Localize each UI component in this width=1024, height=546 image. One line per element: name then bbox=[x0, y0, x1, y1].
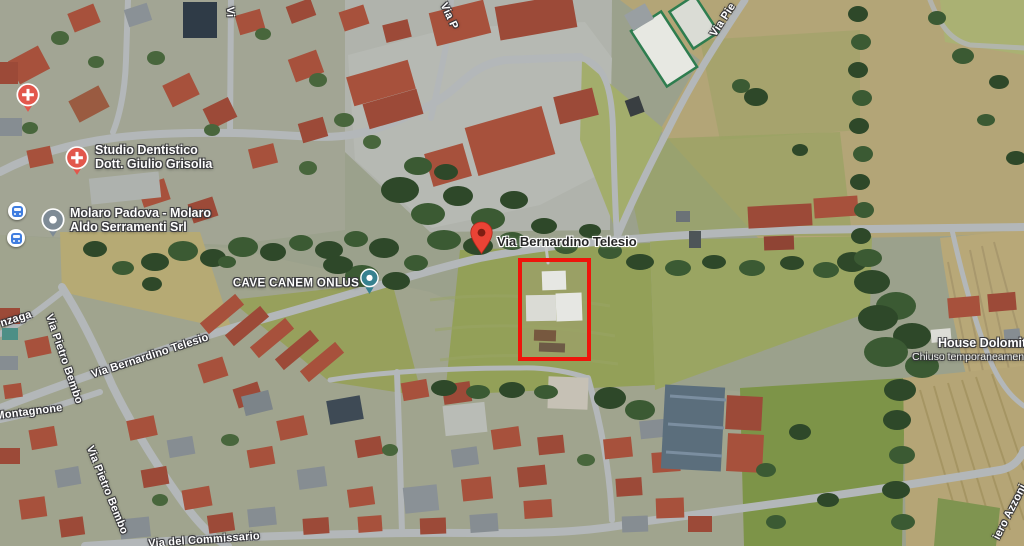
bus-glyph bbox=[11, 233, 22, 244]
health-poi-icon[interactable] bbox=[15, 83, 41, 113]
poi-label-cave-canem[interactable]: CAVE CANEM ONLUS bbox=[233, 277, 359, 291]
selection-rectangle bbox=[518, 258, 591, 361]
marker-address-label: Via Bernardino Telesio bbox=[497, 234, 637, 249]
bus-stop-icon[interactable] bbox=[8, 202, 26, 220]
poi-status-house-dolomiti: Chiuso temporaneamente bbox=[912, 351, 1024, 365]
poi-label-molaro[interactable]: Molaro Padova - Molaro Aldo Serramenti S… bbox=[70, 207, 211, 234]
business-poi-icon[interactable] bbox=[40, 208, 66, 238]
bus-glyph bbox=[12, 206, 23, 217]
satellite-imagery bbox=[0, 0, 1024, 546]
map-marker-icon[interactable] bbox=[469, 221, 494, 256]
place-pin-icon[interactable] bbox=[359, 268, 380, 295]
satellite-map-canvas[interactable]: Via Bernardino Telesio Studio Dentistico… bbox=[0, 0, 1024, 546]
street-label-vi: Vi bbox=[224, 6, 236, 17]
poi-label-studio-dentistico[interactable]: Studio Dentistico Dott. Giulio Grisolia bbox=[95, 144, 212, 171]
health-poi-icon[interactable] bbox=[64, 146, 90, 176]
poi-label-house-dolomiti[interactable]: House Dolomiti bbox=[938, 337, 1024, 351]
bus-stop-icon[interactable] bbox=[7, 229, 25, 247]
